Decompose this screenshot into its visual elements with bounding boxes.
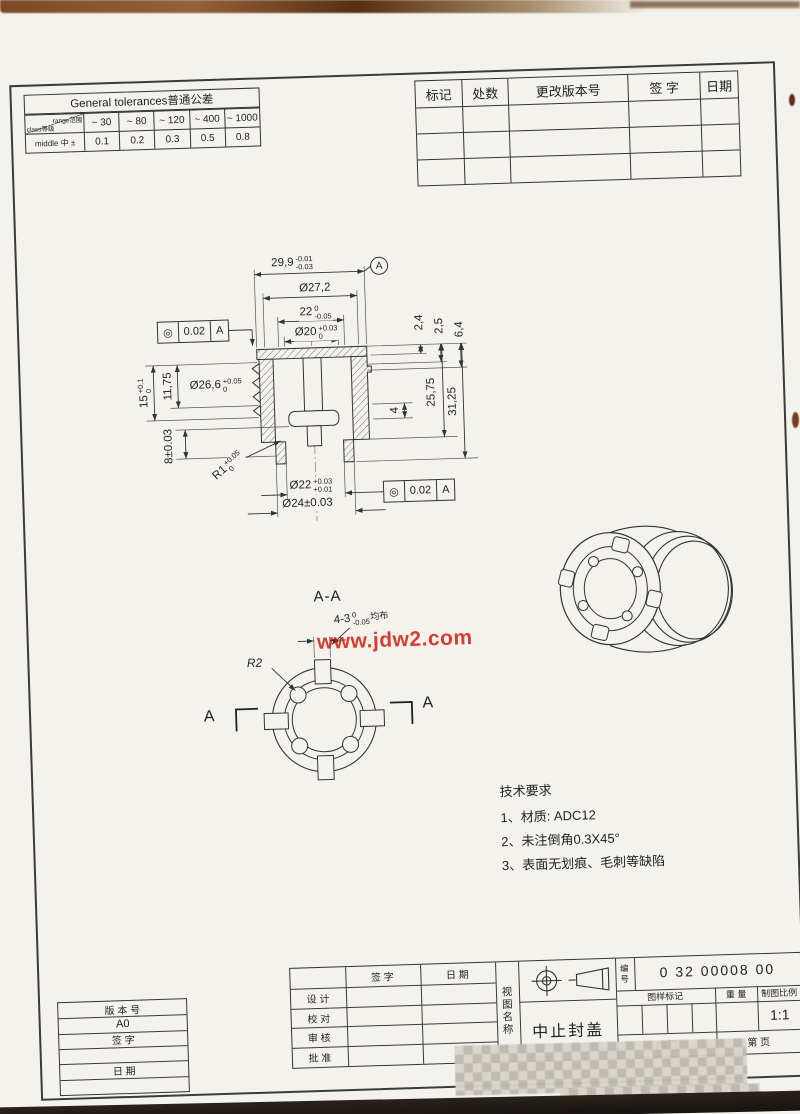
section-aa-label: A-A (313, 588, 342, 606)
mark-header: 图样标记 (647, 989, 683, 1003)
dim-h25: 2,5 (434, 317, 446, 335)
line (666, 1004, 668, 1033)
drawing-sheet-border: General tolerances普通公差 range范围 class等级 ~… (9, 61, 800, 1101)
dim-d22: Ø22+0.03+0.01 (288, 477, 333, 494)
line (616, 1000, 800, 1007)
view-name-label: 视图名称 (499, 986, 516, 1036)
version-box: 版 本 号 A0 签 字 日 期 (57, 998, 190, 1096)
cut-plane-label-left: A (204, 708, 215, 726)
dim-od-top: 29,9-0.01-0.03 (270, 255, 314, 272)
projection-symbol-icon (524, 961, 613, 1000)
version-value: A0 (116, 1018, 130, 1030)
scanned-drawing-photo: General tolerances普通公差 range范围 class等级 ~… (0, 0, 800, 1114)
dim-w22: 220-0.05 (298, 304, 332, 321)
dim-d20: Ø20+0.030 (294, 324, 339, 341)
dim-d266: Ø26,6+0.050 (188, 377, 243, 394)
tol-range: ~ 120 (153, 110, 189, 130)
scale-header: 制图比例 (761, 985, 797, 999)
version-date-label: 日 期 (113, 1062, 136, 1078)
tol-range: ~ 30 (83, 112, 119, 132)
rev-cell (463, 131, 510, 158)
rev-cell (628, 99, 701, 127)
general-tolerances-table: General tolerances普通公差 range范围 class等级 ~… (24, 87, 262, 153)
line (420, 965, 424, 1064)
concentricity-icon: ◎ (384, 481, 405, 502)
dim-h2575: 25,75 (426, 377, 438, 408)
rev-cell (509, 127, 630, 157)
rev-cell (630, 151, 703, 179)
tol-range: ~ 80 (118, 111, 154, 131)
rev-cell (508, 101, 629, 131)
concentricity-icon: ◎ (158, 322, 179, 343)
line (691, 1003, 693, 1032)
rev-cell (416, 106, 463, 133)
line (641, 1005, 643, 1034)
rev-cell (464, 157, 511, 184)
dim-h3125: 31,25 (447, 386, 459, 417)
version-sign-label: 签 字 (112, 1031, 135, 1047)
gdt-frame-concentricity-top: ◎ 0.02 A (157, 319, 230, 343)
line (345, 967, 349, 1066)
dim-h1175: 11,75 (163, 371, 175, 401)
rev-header-date: 日期 (699, 71, 738, 98)
rev-header-count: 处数 (461, 79, 508, 106)
line (757, 986, 759, 1030)
drawing-no-label: 编号 (618, 964, 631, 985)
weight-header: 重 量 (726, 987, 747, 1001)
rev-cell (702, 149, 741, 176)
line (291, 982, 496, 989)
rev-cell (510, 153, 631, 183)
tolerances-corner-cell: range范围 class等级 (25, 113, 84, 134)
paper-mark (792, 412, 799, 428)
rev-cell (417, 132, 464, 159)
paper-smudge-top-right (630, 1, 800, 8)
row-approve: 批 准 (308, 1049, 331, 1065)
tol-row-label: middle 中 ± (26, 132, 85, 153)
dim-d272: Ø27,2 (298, 283, 332, 296)
rev-header-version: 更改版本号 (507, 75, 628, 105)
paper-smudge-top (0, 0, 650, 13)
tol-value: 0.2 (119, 130, 155, 150)
line (519, 999, 616, 1003)
isometric-part-view (540, 505, 735, 661)
tol-range: ~ 400 (189, 109, 225, 129)
version-label: 版 本 号 (104, 1001, 140, 1017)
rev-cell (629, 125, 702, 153)
line (617, 1029, 800, 1036)
tol-value: 0.1 (84, 131, 120, 151)
rev-cell (701, 123, 740, 150)
rev-header-sign: 签 字 (627, 73, 700, 101)
line (634, 958, 636, 990)
scale-value: 1:1 (770, 1006, 790, 1023)
revision-table: 标记 处数 更改版本号 签 字 日期 (414, 70, 741, 186)
drawing-number: 0 32 00008 00 (659, 961, 775, 981)
tol-value: 0.8 (224, 126, 260, 146)
rev-cell (462, 105, 509, 132)
tol-range: ~ 1000 (224, 107, 260, 127)
part-name: 中止封盖 (532, 1016, 605, 1042)
dim-h24: 2,4 (414, 313, 426, 331)
dim-r2: R2 (247, 656, 263, 670)
dim-h15: 15+0.10 (137, 377, 154, 409)
tol-value: 0.5 (189, 128, 225, 148)
pages-number: 第 页 (747, 1033, 770, 1049)
technical-requirements: 技术要求 1、材质: ADC12 2、未注倒角0.3X45° 3、表面无划痕、毛… (499, 773, 742, 879)
dim-h8: 8±0.03 (163, 428, 176, 465)
dim-d24: Ø24±0.03 (281, 498, 334, 511)
sign-header: 签 字 (371, 968, 394, 984)
tol-value: 0.3 (154, 129, 190, 149)
row-design: 设 计 (306, 990, 329, 1006)
rev-cell (418, 158, 465, 185)
watermark: www.jdw2.com (317, 625, 518, 655)
rev-cell (700, 97, 739, 124)
row-review: 审 核 (308, 1029, 331, 1045)
dim-h4: 4 (390, 406, 402, 415)
cut-plane-label-right: A (422, 694, 433, 712)
rev-header-mark: 标记 (415, 80, 462, 107)
paper-mark (789, 94, 795, 106)
row-check: 校 对 (307, 1010, 330, 1026)
dim-h64: 6,4 (454, 320, 466, 338)
date-header: 日 期 (446, 966, 469, 982)
gdt-frame-concentricity-bottom: ◎ 0.02 A (383, 478, 456, 502)
